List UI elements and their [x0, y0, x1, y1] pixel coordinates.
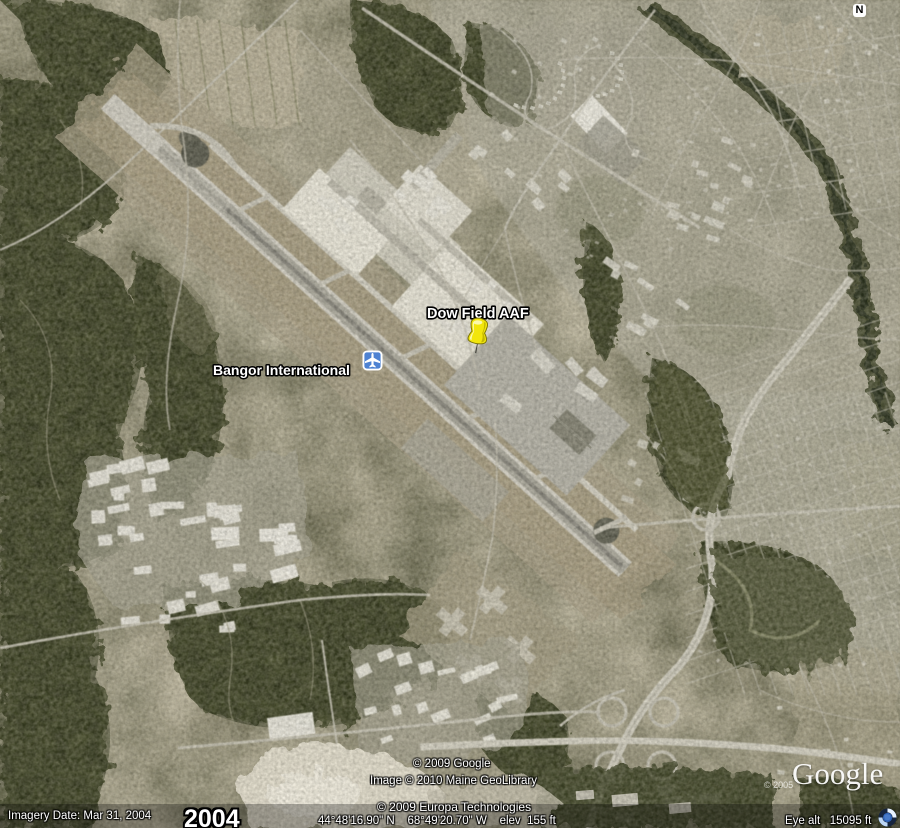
svg-text:Bangor International: Bangor International	[213, 362, 350, 378]
